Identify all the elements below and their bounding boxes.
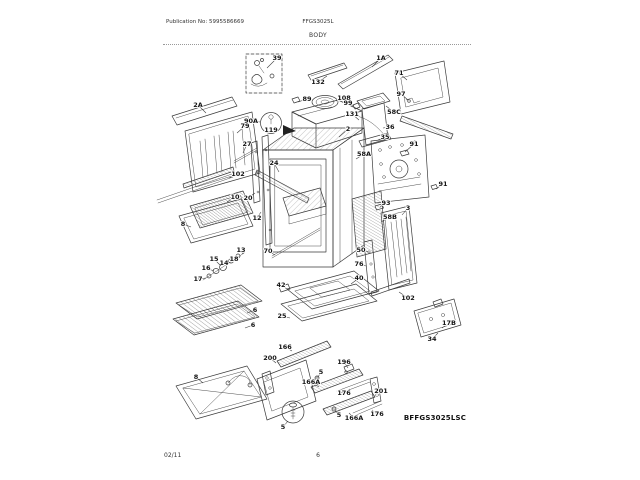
rear-panel-71 [395,61,453,139]
parts-catalog-page: Publication No: 5995586669 FFGS3025L BOD… [0,0,640,480]
part-callout-102: 102 [231,170,245,178]
part-callout-35: 35 [380,133,390,141]
part-callout-58C: 58C [387,108,401,116]
part-callout-3: 3 [406,204,411,212]
part-callout-25: 25 [277,312,287,320]
part-callout-91: 91 [438,180,448,188]
part-callout-8: 8 [194,373,199,381]
part-callout-119: 119 [264,126,278,134]
part-callout-39: 39 [272,54,282,62]
part-callout-1A: 1A [376,54,386,62]
part-callout-99: 99 [343,99,353,107]
trim-rod-70 [272,228,320,258]
bottom-frame-25 [281,284,377,321]
clip-99 [353,103,360,109]
drawer-pan [176,366,274,419]
part-callout-42: 42 [276,281,285,289]
part-callout-97: 97 [396,90,405,98]
part-callout-18: 18 [229,255,239,263]
part-callout-20: 20 [243,194,253,202]
part-callout-2: 2 [346,125,351,133]
part-callout-79: 79 [240,122,250,130]
part-callout-89: 89 [302,95,312,103]
footer-page-number: 6 [300,452,336,459]
part-callout-16: 16 [201,264,211,272]
clip-89 [292,97,300,103]
part-callout-17: 17 [193,275,202,283]
oven-bottom-40 [279,271,379,309]
part-callout-6: 6 [251,321,256,329]
part-callout-196: 196 [337,358,351,366]
part-callout-102: 102 [401,294,415,302]
part-callout-15: 15 [209,255,219,263]
side-trim-2a [172,97,237,125]
part-callout-58A: 58A [357,150,371,158]
part-callout-200: 200 [263,354,277,362]
part-callout-58B: 58B [383,213,397,221]
part-callout-40: 40 [354,274,364,282]
part-callout-5: 5 [319,368,324,376]
part-callout-166A: 166A [302,378,321,386]
part-callout-10: 10 [230,193,240,201]
part-callout-12: 12 [252,214,261,222]
burner-ring-108 [312,96,338,109]
part-callout-131: 131 [345,110,359,118]
part-callout-93: 93 [381,199,390,207]
part-callout-17B: 17B [442,319,456,327]
part-callout-50: 50 [356,246,366,254]
part-callout-34: 34 [427,335,437,343]
diagram-code: BFFGS3025LSC [360,414,510,422]
part-callout-13: 13 [236,246,245,254]
part-callout-6: 6 [253,306,258,314]
exploded-parts-diagram: 391321A71978910890A1192A7927102108991312… [0,0,640,480]
part-callout-132: 132 [311,78,325,86]
part-callout-70: 70 [263,247,273,255]
part-callout-24: 24 [269,159,279,167]
screw-detail-circle [282,401,304,423]
part-callout-201: 201 [374,387,388,395]
footer-date: 02/11 [164,452,181,459]
part-callout-71: 71 [394,69,404,77]
part-callout-8: 8 [181,220,186,228]
part-callout-76: 76 [354,260,364,268]
part-callout-176: 176 [337,389,351,397]
rod-27 [234,148,257,163]
part-callout-27: 27 [242,140,251,148]
part-callout-166: 166 [278,343,292,351]
part-callout-91: 91 [409,140,419,148]
part-callout-5: 5 [337,411,342,419]
part-callout-2A: 2A [193,101,203,109]
part-callout-5: 5 [281,423,286,431]
bracket-97 [406,98,420,103]
part-callout-36: 36 [385,123,395,131]
corner-panel-17b [414,299,461,337]
